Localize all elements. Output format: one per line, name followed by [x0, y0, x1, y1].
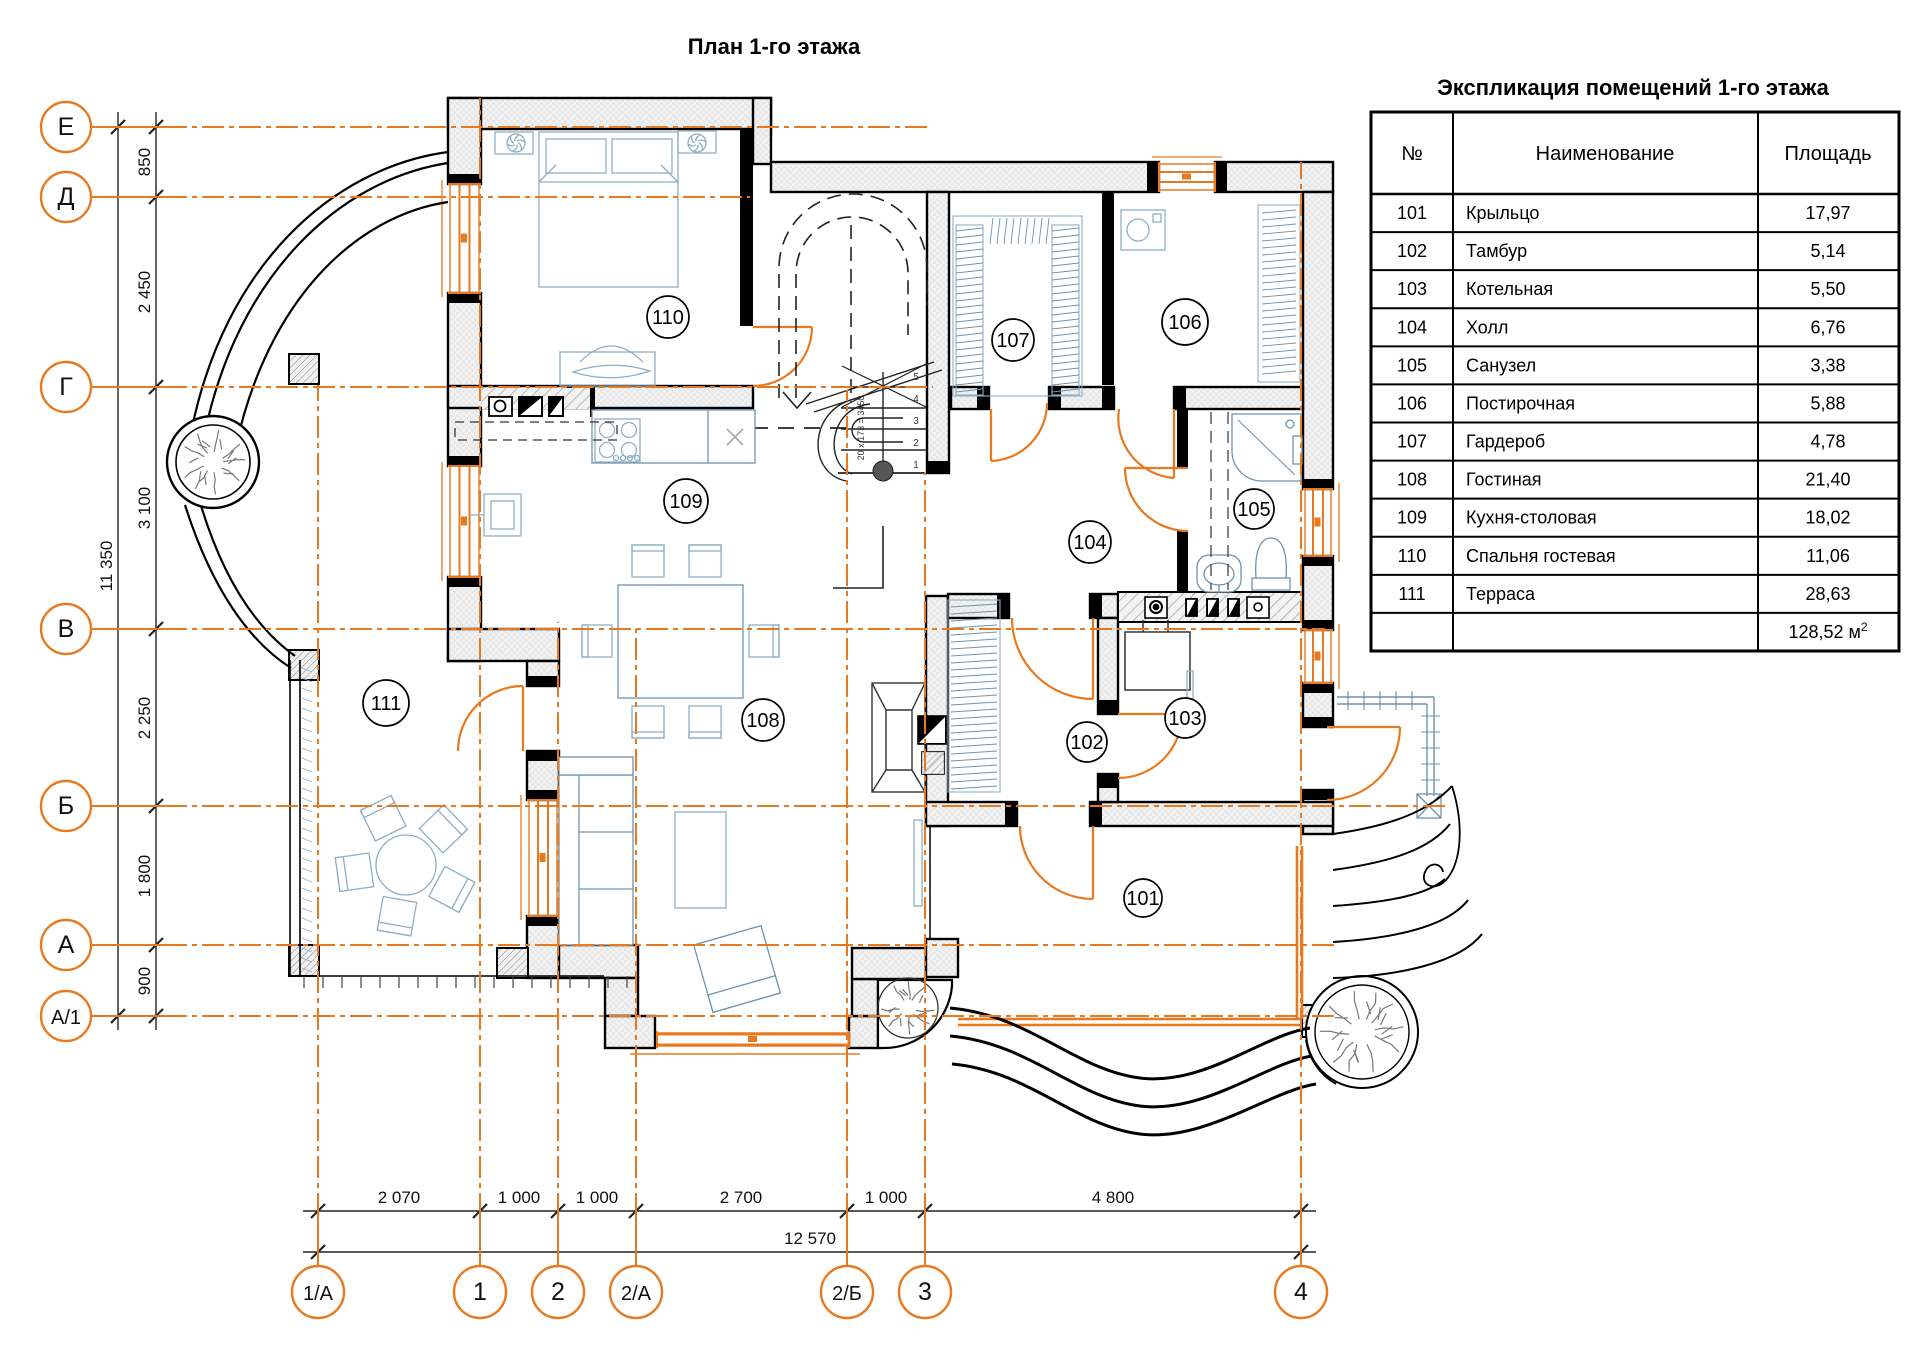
- svg-text:1 800: 1 800: [135, 855, 154, 898]
- svg-text:110: 110: [1398, 546, 1427, 566]
- svg-text:104: 104: [1397, 317, 1427, 337]
- svg-text:103: 103: [1397, 279, 1427, 299]
- svg-text:104: 104: [1073, 532, 1106, 554]
- svg-text:2 700: 2 700: [720, 1188, 763, 1207]
- svg-text:Наименование: Наименование: [1536, 143, 1675, 165]
- svg-text:2/А: 2/А: [621, 1283, 652, 1305]
- svg-text:Б: Б: [58, 792, 74, 820]
- svg-text:6,76: 6,76: [1810, 317, 1845, 337]
- svg-text:Холл: Холл: [1466, 317, 1508, 337]
- svg-text:№: №: [1401, 143, 1422, 165]
- svg-text:Тамбур: Тамбур: [1466, 241, 1527, 261]
- svg-text:А: А: [58, 931, 75, 959]
- svg-text:101: 101: [1126, 888, 1159, 910]
- svg-text:128,52 м2: 128,52 м2: [1788, 620, 1867, 642]
- svg-text:111: 111: [1398, 584, 1425, 604]
- svg-text:Е: Е: [58, 113, 75, 141]
- svg-text:3 100: 3 100: [135, 487, 154, 530]
- svg-text:1 000: 1 000: [498, 1188, 541, 1207]
- svg-text:110: 110: [652, 307, 684, 329]
- svg-text:21,40: 21,40: [1805, 470, 1850, 490]
- svg-text:850: 850: [135, 148, 154, 176]
- svg-text:105: 105: [1237, 499, 1270, 521]
- svg-text:4: 4: [1294, 1278, 1308, 1306]
- svg-text:11,06: 11,06: [1806, 546, 1850, 566]
- svg-text:2/Б: 2/Б: [832, 1283, 862, 1305]
- svg-text:11 350: 11 350: [97, 541, 116, 592]
- svg-text:Г: Г: [59, 373, 73, 401]
- svg-text:Д: Д: [58, 183, 75, 211]
- svg-text:2: 2: [913, 438, 919, 449]
- svg-text:2: 2: [551, 1278, 565, 1306]
- svg-text:17,97: 17,97: [1805, 203, 1850, 223]
- svg-text:109: 109: [669, 491, 702, 513]
- svg-text:1/А: 1/А: [303, 1283, 334, 1305]
- svg-text:Гардероб: Гардероб: [1466, 432, 1545, 452]
- svg-text:20 x 173 = 3450: 20 x 173 = 3450: [856, 396, 866, 461]
- svg-text:18,02: 18,02: [1805, 508, 1850, 528]
- svg-text:5: 5: [913, 372, 919, 383]
- svg-text:Санузел: Санузел: [1466, 355, 1536, 375]
- svg-text:106: 106: [1168, 312, 1201, 334]
- svg-text:1: 1: [473, 1278, 487, 1306]
- svg-text:108: 108: [746, 710, 779, 732]
- svg-text:102: 102: [1070, 732, 1103, 754]
- svg-text:Площадь: Площадь: [1784, 143, 1871, 165]
- svg-text:1: 1: [913, 460, 919, 471]
- svg-text:В: В: [58, 615, 75, 643]
- svg-text:2 450: 2 450: [135, 271, 154, 314]
- svg-text:1 000: 1 000: [576, 1188, 619, 1207]
- svg-text:Постирочная: Постирочная: [1466, 393, 1575, 413]
- svg-text:111: 111: [371, 693, 401, 715]
- svg-text:1 000: 1 000: [865, 1188, 908, 1207]
- svg-text:3,38: 3,38: [1810, 355, 1845, 375]
- svg-text:107: 107: [1397, 432, 1427, 452]
- svg-text:101: 101: [1397, 203, 1427, 223]
- svg-text:900: 900: [135, 967, 154, 995]
- svg-text:5,50: 5,50: [1810, 279, 1845, 299]
- svg-text:Экспликация помещений 1-го эта: Экспликация помещений 1-го этажа: [1437, 75, 1830, 100]
- svg-text:107: 107: [996, 330, 1029, 352]
- svg-text:2 250: 2 250: [135, 697, 154, 740]
- svg-text:102: 102: [1397, 241, 1427, 261]
- svg-text:105: 105: [1397, 355, 1427, 375]
- svg-text:Терраса: Терраса: [1466, 584, 1536, 604]
- svg-text:28,63: 28,63: [1805, 584, 1850, 604]
- svg-text:108: 108: [1397, 470, 1427, 490]
- svg-text:103: 103: [1168, 708, 1201, 730]
- svg-text:4: 4: [913, 394, 919, 405]
- svg-text:А/1: А/1: [51, 1007, 81, 1029]
- svg-text:5,14: 5,14: [1810, 241, 1845, 261]
- svg-text:Крыльцо: Крыльцо: [1466, 203, 1539, 223]
- svg-text:109: 109: [1397, 508, 1427, 528]
- svg-text:Котельная: Котельная: [1466, 279, 1553, 299]
- svg-text:План 1-го этажа: План 1-го этажа: [688, 34, 861, 59]
- svg-text:4,78: 4,78: [1810, 432, 1845, 452]
- svg-text:2 070: 2 070: [378, 1188, 421, 1207]
- svg-text:4 800: 4 800: [1092, 1188, 1135, 1207]
- svg-text:Кухня-столовая: Кухня-столовая: [1466, 508, 1597, 528]
- svg-text:Гостиная: Гостиная: [1466, 470, 1542, 490]
- svg-text:106: 106: [1397, 393, 1427, 413]
- svg-text:5,88: 5,88: [1810, 393, 1845, 413]
- svg-text:3: 3: [913, 416, 919, 427]
- svg-text:12 570: 12 570: [784, 1229, 836, 1248]
- svg-text:3: 3: [918, 1278, 932, 1306]
- svg-text:Спальня гостевая: Спальня гостевая: [1466, 546, 1616, 566]
